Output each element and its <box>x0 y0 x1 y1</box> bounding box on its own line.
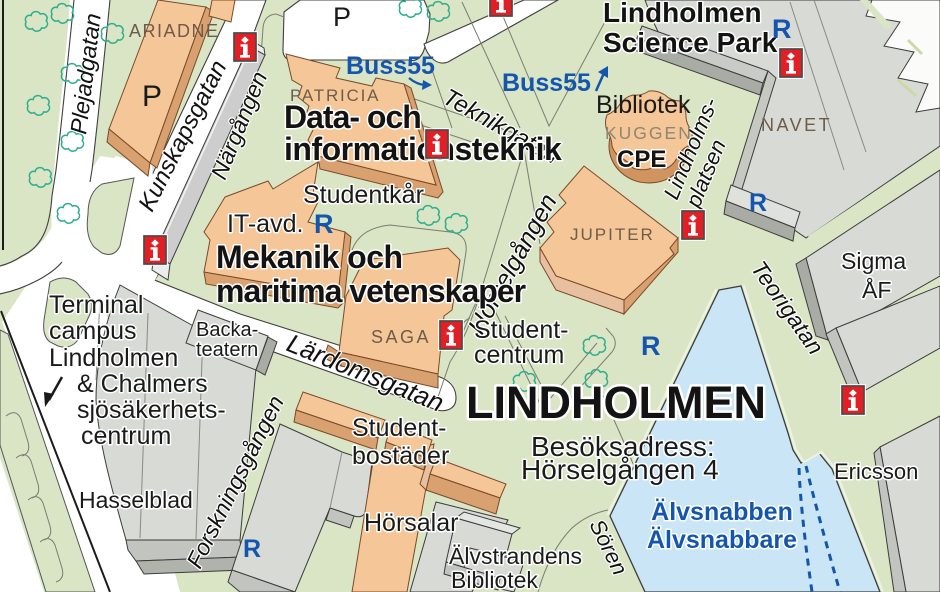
svg-text:Backa-: Backa- <box>196 319 258 341</box>
svg-text:P: P <box>142 80 162 113</box>
svg-text:R: R <box>243 535 261 563</box>
svg-text:Mekanik och: Mekanik och <box>216 239 403 275</box>
svg-text:NAVET: NAVET <box>761 115 832 135</box>
svg-text:SAGA: SAGA <box>371 327 431 347</box>
svg-text:R: R <box>772 14 792 44</box>
svg-text:Buss55: Buss55 <box>346 52 435 80</box>
svg-text:Science Park: Science Park <box>603 27 778 58</box>
svg-text:Bibliotek: Bibliotek <box>451 567 538 592</box>
svg-text:bostäder: bostäder <box>352 442 449 470</box>
svg-text:KUGGEN: KUGGEN <box>605 123 693 143</box>
svg-text:IT-avd.: IT-avd. <box>227 210 303 238</box>
svg-text:Älvsnabbare: Älvsnabbare <box>647 526 797 554</box>
svg-text:LINDHOLMEN: LINDHOLMEN <box>466 377 766 428</box>
svg-text:campus: campus <box>49 317 137 345</box>
svg-text:teatern: teatern <box>196 339 258 361</box>
svg-text:Lindholmen: Lindholmen <box>603 0 762 28</box>
svg-text:Student-: Student- <box>352 414 447 442</box>
svg-text:Älvstrandens: Älvstrandens <box>449 543 582 569</box>
svg-text:Studentkår: Studentkår <box>303 181 424 209</box>
svg-text:& Chalmers: & Chalmers <box>77 370 208 398</box>
svg-text:Student-: Student- <box>474 316 569 344</box>
svg-text:R: R <box>749 189 767 217</box>
svg-text:R: R <box>314 209 334 239</box>
svg-text:Terminal: Terminal <box>49 291 143 319</box>
svg-text:Älvsnabben: Älvsnabben <box>651 498 793 526</box>
svg-text:sjösäkerhets-: sjösäkerhets- <box>77 396 226 424</box>
svg-text:maritima vetenskaper: maritima vetenskaper <box>216 273 526 309</box>
svg-text:JUPITER: JUPITER <box>570 225 655 244</box>
svg-text:informationsteknik: informationsteknik <box>284 131 562 167</box>
svg-text:Data- och: Data- och <box>284 99 421 135</box>
svg-text:Sigma: Sigma <box>841 248 906 274</box>
svg-text:Lindholmen: Lindholmen <box>49 344 178 372</box>
svg-text:Hörsalar: Hörsalar <box>364 509 458 537</box>
svg-text:R: R <box>641 331 661 361</box>
svg-text:centrum: centrum <box>474 341 564 369</box>
svg-text:ÅF: ÅF <box>862 276 891 303</box>
svg-text:Hasselblad: Hasselblad <box>79 487 193 513</box>
svg-text:CPE: CPE <box>617 146 666 173</box>
svg-text:P: P <box>333 2 351 32</box>
svg-text:centrum: centrum <box>81 422 171 450</box>
svg-text:Buss55: Buss55 <box>502 69 591 97</box>
svg-text:ARIADNE: ARIADNE <box>129 21 220 41</box>
svg-text:Bibliotek: Bibliotek <box>596 91 691 119</box>
svg-text:Hörselgången 4: Hörselgången 4 <box>521 454 719 485</box>
svg-text:Ericsson: Ericsson <box>834 459 918 484</box>
